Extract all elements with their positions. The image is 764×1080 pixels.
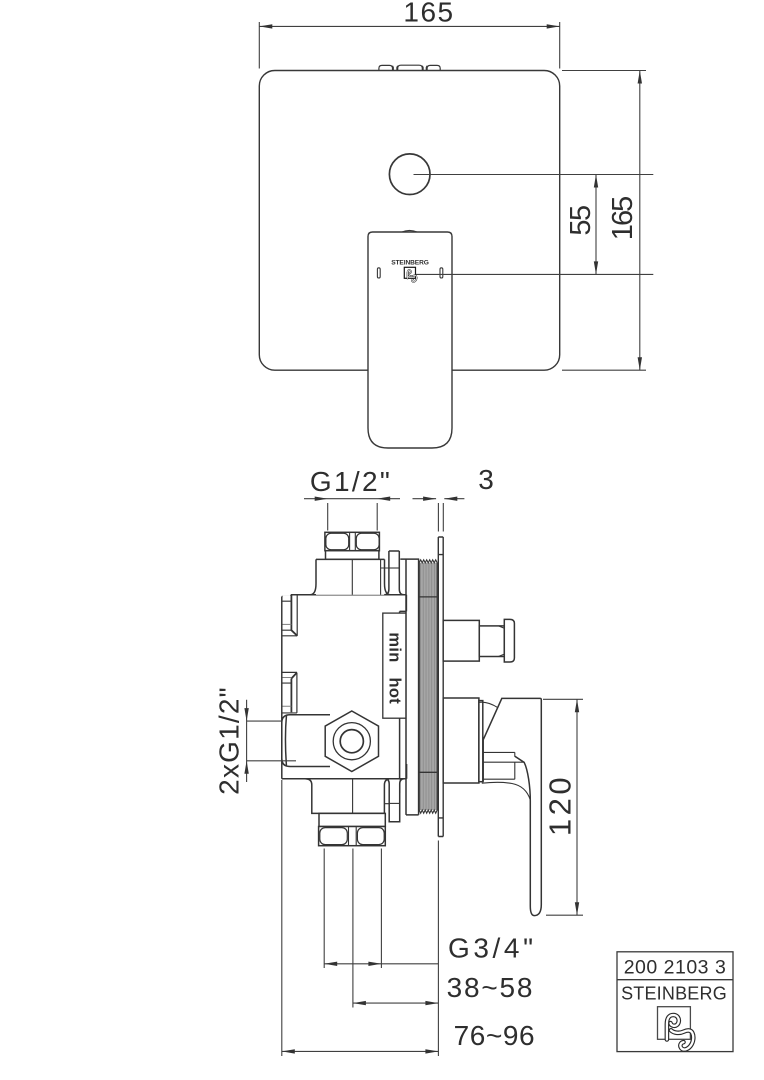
svg-text:2xG1/2": 2xG1/2" [214,686,245,795]
svg-text:min: min [386,632,404,662]
svg-text:200 2103 3: 200 2103 3 [624,957,727,979]
svg-text:38~58: 38~58 [447,972,535,1003]
svg-text:3: 3 [478,464,494,495]
svg-text:STEINBERG: STEINBERG [391,260,429,267]
svg-text:G1/2": G1/2" [310,466,392,497]
svg-text:STEINBERG: STEINBERG [621,984,727,1004]
svg-text:76~96: 76~96 [454,1020,536,1051]
svg-text:hot: hot [386,678,404,705]
svg-text:G3/4": G3/4" [448,932,537,963]
svg-text:165: 165 [607,197,639,240]
svg-text:55: 55 [565,206,597,236]
svg-text:165: 165 [403,0,454,28]
svg-text:120: 120 [543,774,578,836]
